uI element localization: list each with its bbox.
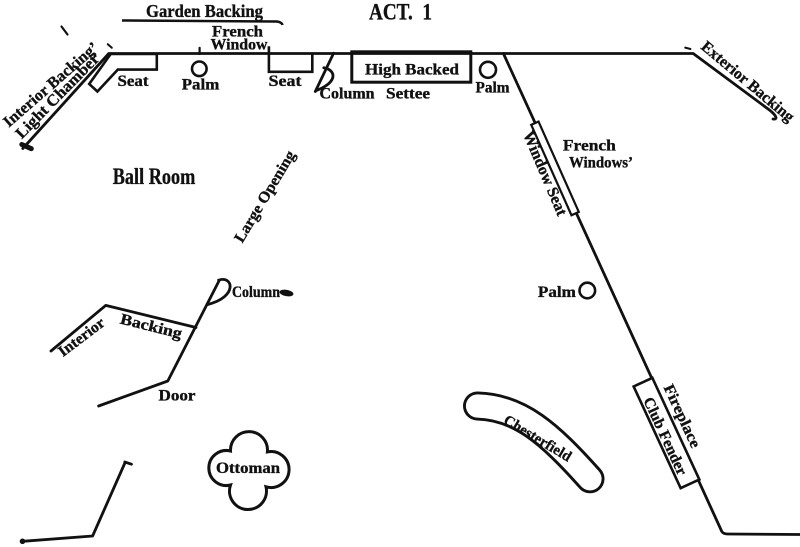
svg-text:Door: Door — [159, 388, 196, 405]
svg-text:Palm: Palm — [538, 284, 576, 301]
svg-text:Palm: Palm — [182, 77, 220, 94]
svg-text:Settee: Settee — [386, 86, 430, 103]
svg-text:Column: Column — [320, 86, 375, 103]
svg-text:Windows’: Windows’ — [569, 155, 633, 172]
svg-text:Garden Backing: Garden Backing — [146, 1, 263, 21]
svg-text:Seat: Seat — [269, 73, 303, 90]
svg-text:French: French — [563, 138, 616, 155]
svg-text:Seat: Seat — [118, 73, 150, 90]
svg-text:ACT. 1: ACT. 1 — [369, 0, 432, 25]
svg-text:Ball Room: Ball Room — [113, 164, 196, 189]
svg-text:Palm: Palm — [476, 80, 510, 97]
svg-text:High Backed: High Backed — [365, 62, 459, 79]
svg-text:Ottoman: Ottoman — [216, 460, 280, 477]
svg-text:Column: Column — [232, 284, 280, 301]
svg-text:Window: Window — [211, 37, 268, 54]
